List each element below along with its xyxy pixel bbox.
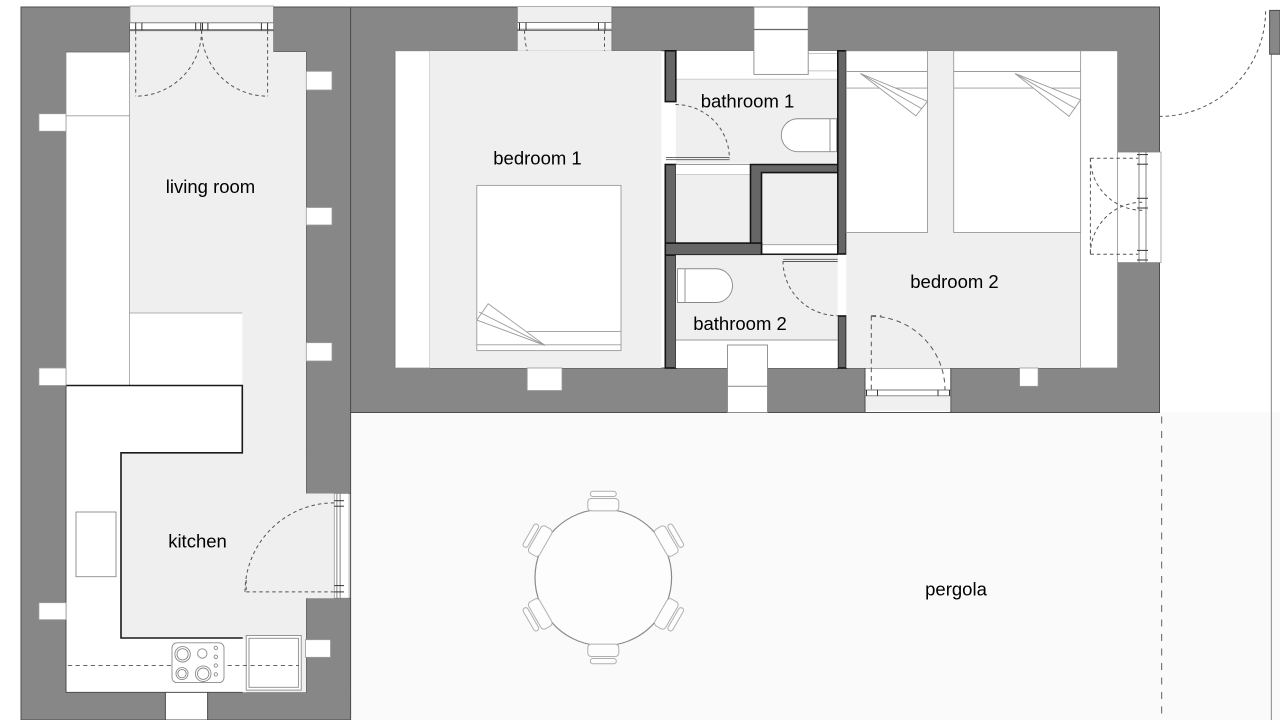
svg-text:bedroom 1: bedroom 1	[493, 148, 581, 169]
svg-text:pergola: pergola	[925, 579, 987, 600]
svg-text:bathroom 1: bathroom 1	[701, 91, 795, 112]
svg-text:living room: living room	[166, 176, 255, 197]
svg-text:bedroom 2: bedroom 2	[910, 271, 998, 292]
svg-text:bathroom 2: bathroom 2	[693, 313, 787, 334]
svg-text:kitchen: kitchen	[168, 531, 227, 552]
